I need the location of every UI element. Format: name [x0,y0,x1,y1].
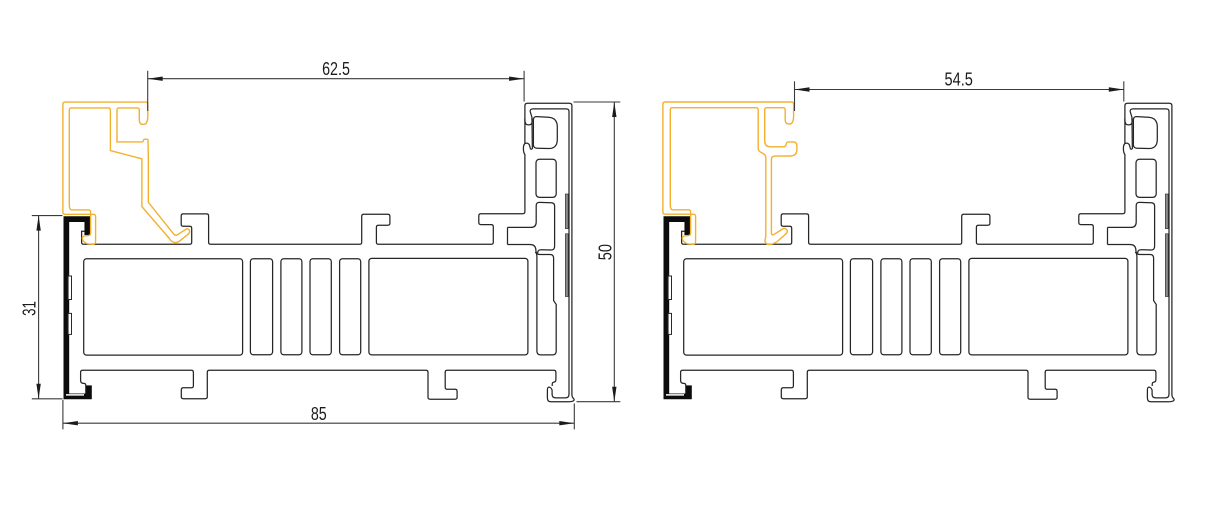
svg-text:31: 31 [20,301,40,316]
svg-text:54.5: 54.5 [945,70,973,90]
svg-text:50: 50 [595,244,615,260]
svg-text:85: 85 [311,404,327,424]
svg-text:62.5: 62.5 [322,59,350,79]
